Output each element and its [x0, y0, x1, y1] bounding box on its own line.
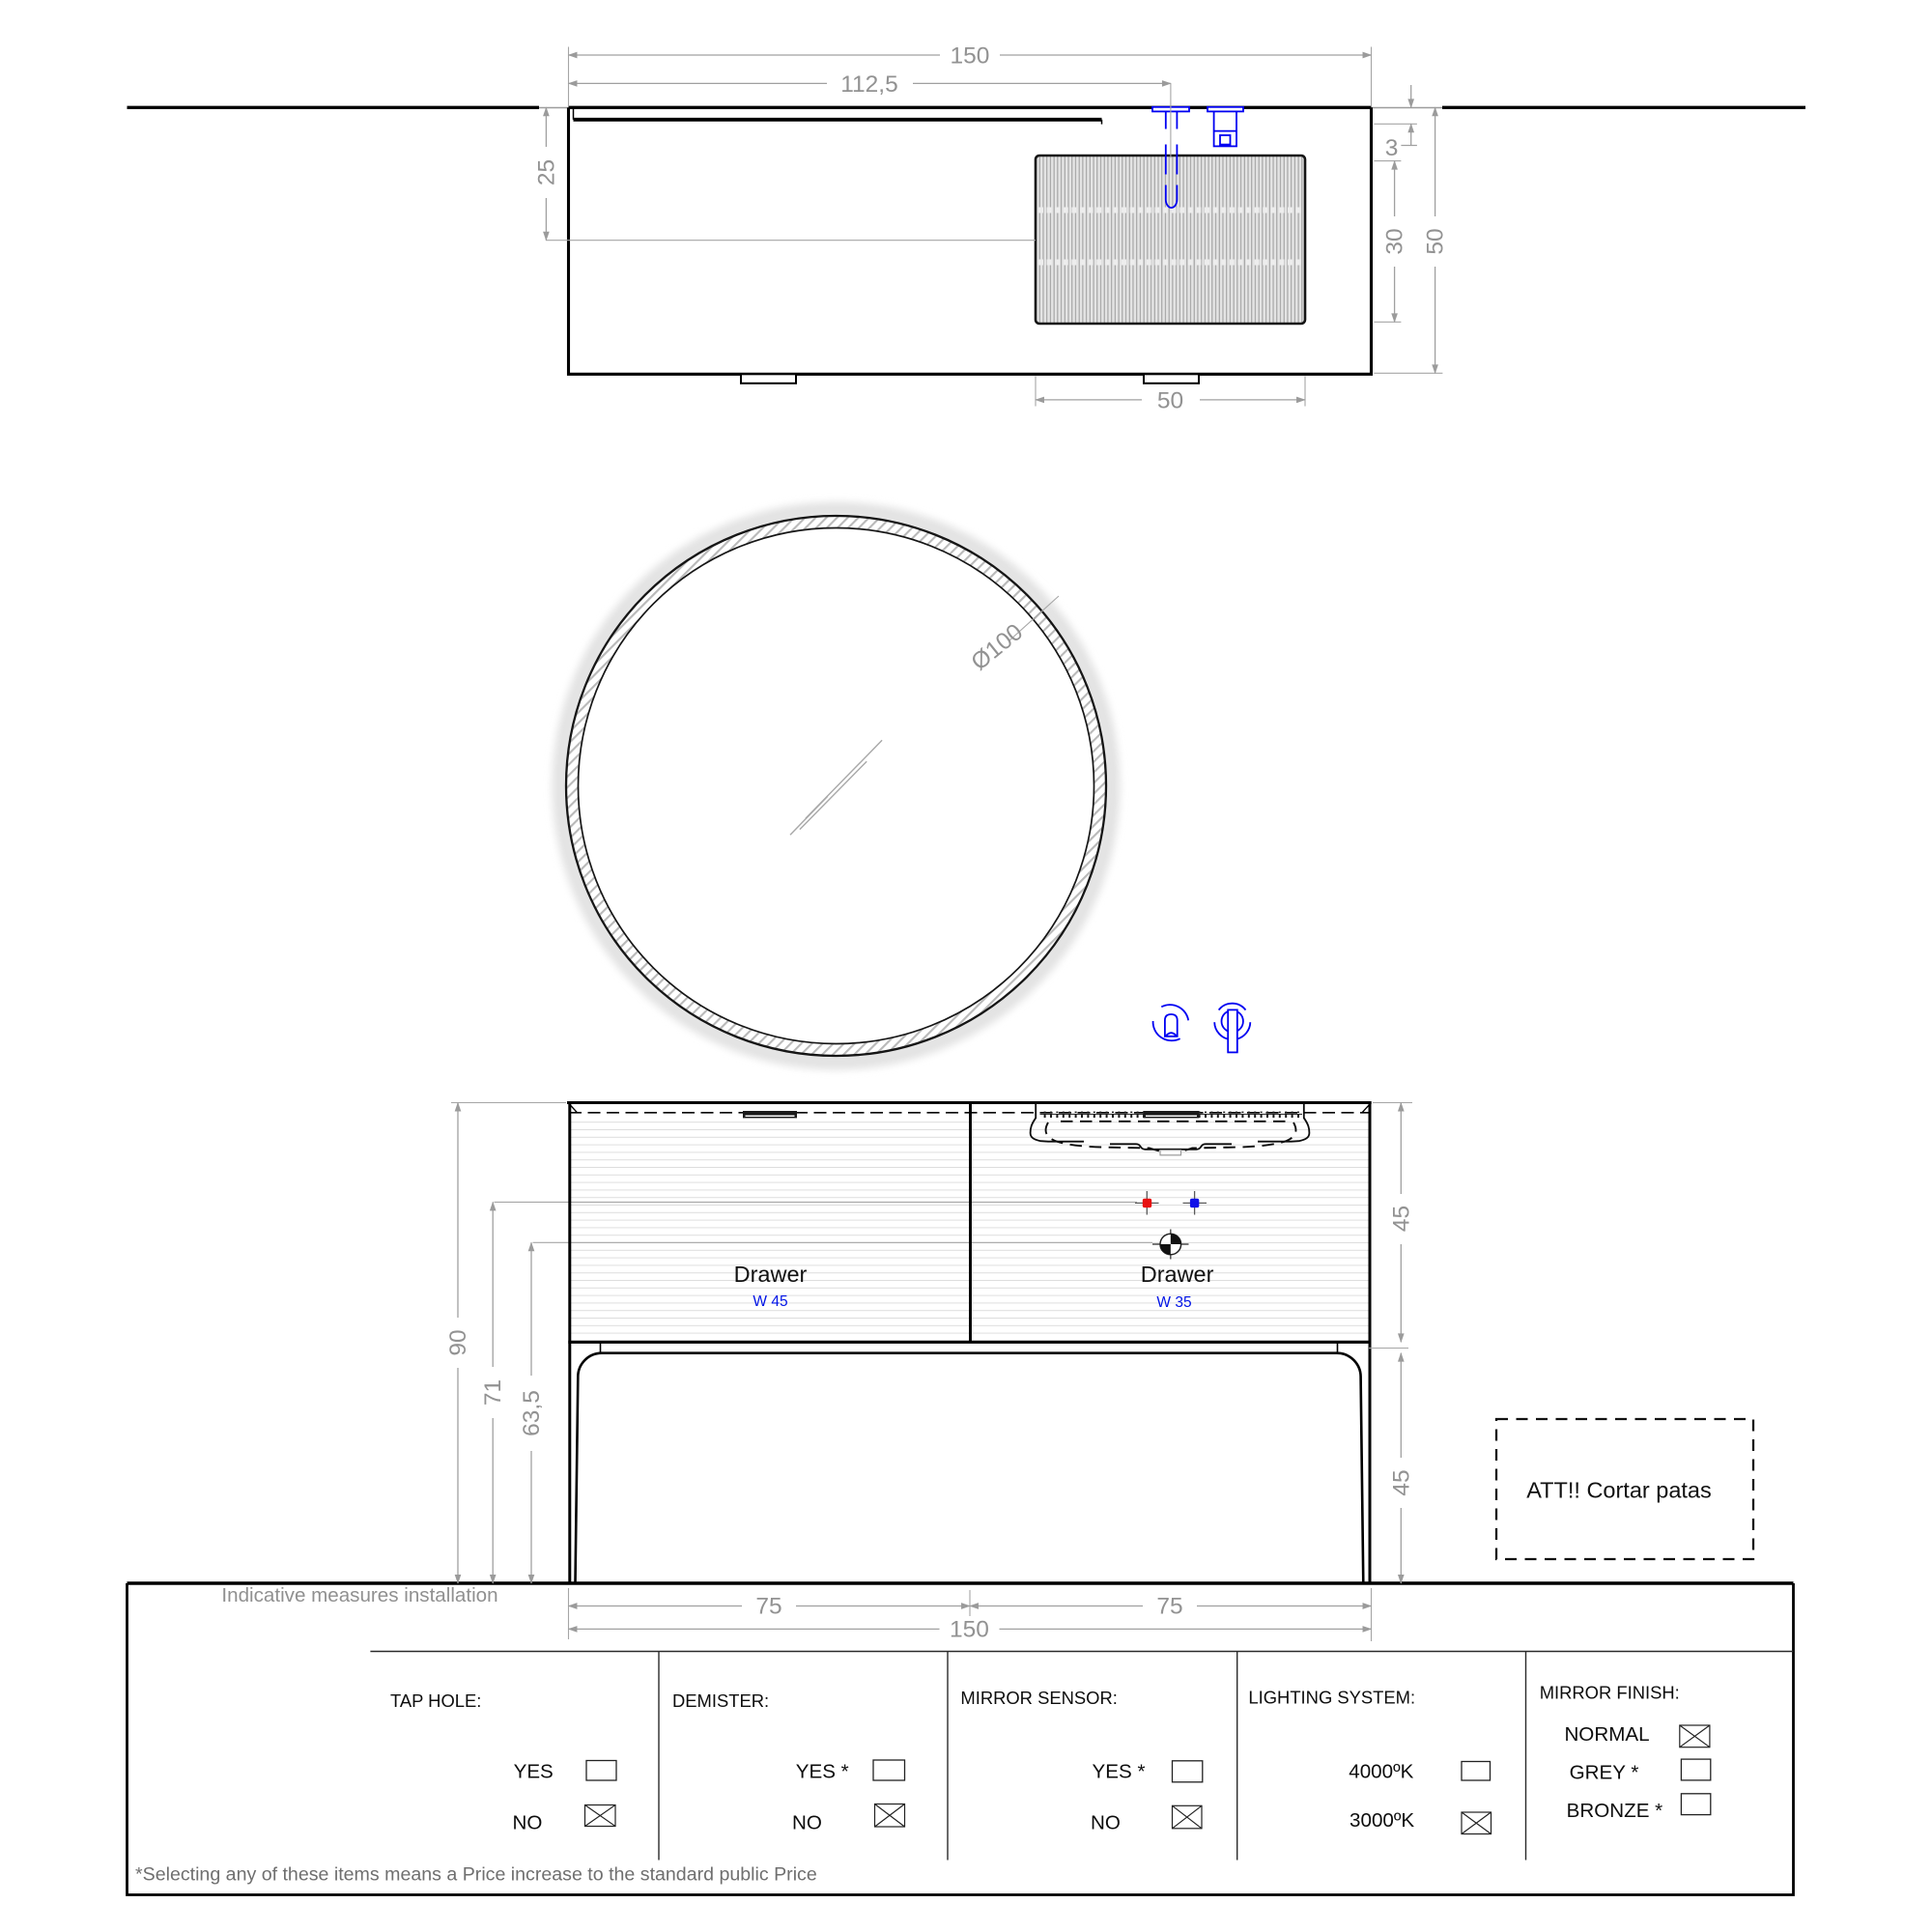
svg-text:Drawer: Drawer [734, 1262, 808, 1287]
svg-text:90: 90 [445, 1329, 471, 1355]
svg-text:W 45: W 45 [753, 1293, 787, 1310]
svg-text:25: 25 [534, 159, 560, 185]
svg-text:W 35: W 35 [1156, 1294, 1191, 1311]
svg-text:ATT!! Cortar patas: ATT!! Cortar patas [1526, 1478, 1712, 1503]
svg-text:DEMISTER:: DEMISTER: [672, 1690, 769, 1711]
svg-text:BRONZE *: BRONZE * [1567, 1800, 1663, 1822]
svg-text:45: 45 [1388, 1469, 1414, 1495]
svg-text:TAP HOLE:: TAP HOLE: [390, 1690, 481, 1711]
svg-text:*Selecting any of these items: *Selecting any of these items means a Pr… [135, 1864, 817, 1886]
svg-text:150: 150 [951, 43, 990, 70]
svg-text:LIGHTING SYSTEM:: LIGHTING SYSTEM: [1248, 1688, 1415, 1708]
svg-text:Drawer: Drawer [1141, 1262, 1214, 1287]
svg-text:50: 50 [1423, 228, 1449, 254]
svg-text:4000ºK: 4000ºK [1349, 1761, 1413, 1783]
svg-text:75: 75 [1156, 1594, 1182, 1620]
svg-text:MIRROR FINISH:: MIRROR FINISH: [1540, 1683, 1680, 1703]
svg-text:MIRROR SENSOR:: MIRROR SENSOR: [960, 1688, 1117, 1708]
svg-text:GREY *: GREY * [1570, 1762, 1639, 1784]
svg-text:YES *: YES * [796, 1761, 849, 1783]
svg-text:45: 45 [1388, 1206, 1414, 1232]
svg-text:63,5: 63,5 [519, 1390, 545, 1436]
svg-text:112,5: 112,5 [840, 71, 898, 98]
svg-text:YES *: YES * [1093, 1761, 1146, 1783]
svg-text:3000ºK: 3000ºK [1350, 1809, 1414, 1832]
svg-text:71: 71 [480, 1379, 506, 1406]
svg-text:NORMAL: NORMAL [1564, 1723, 1649, 1746]
svg-text:50: 50 [1157, 388, 1183, 414]
svg-text:Indicative measures installati: Indicative measures installation [221, 1584, 497, 1606]
svg-text:30: 30 [1382, 228, 1408, 254]
svg-text:NO: NO [792, 1812, 822, 1834]
svg-text:NO: NO [1091, 1812, 1121, 1834]
svg-text:3: 3 [1385, 135, 1399, 161]
svg-text:NO: NO [513, 1812, 543, 1834]
svg-text:150: 150 [950, 1617, 989, 1643]
svg-text:YES: YES [514, 1761, 554, 1783]
svg-text:75: 75 [755, 1594, 781, 1620]
